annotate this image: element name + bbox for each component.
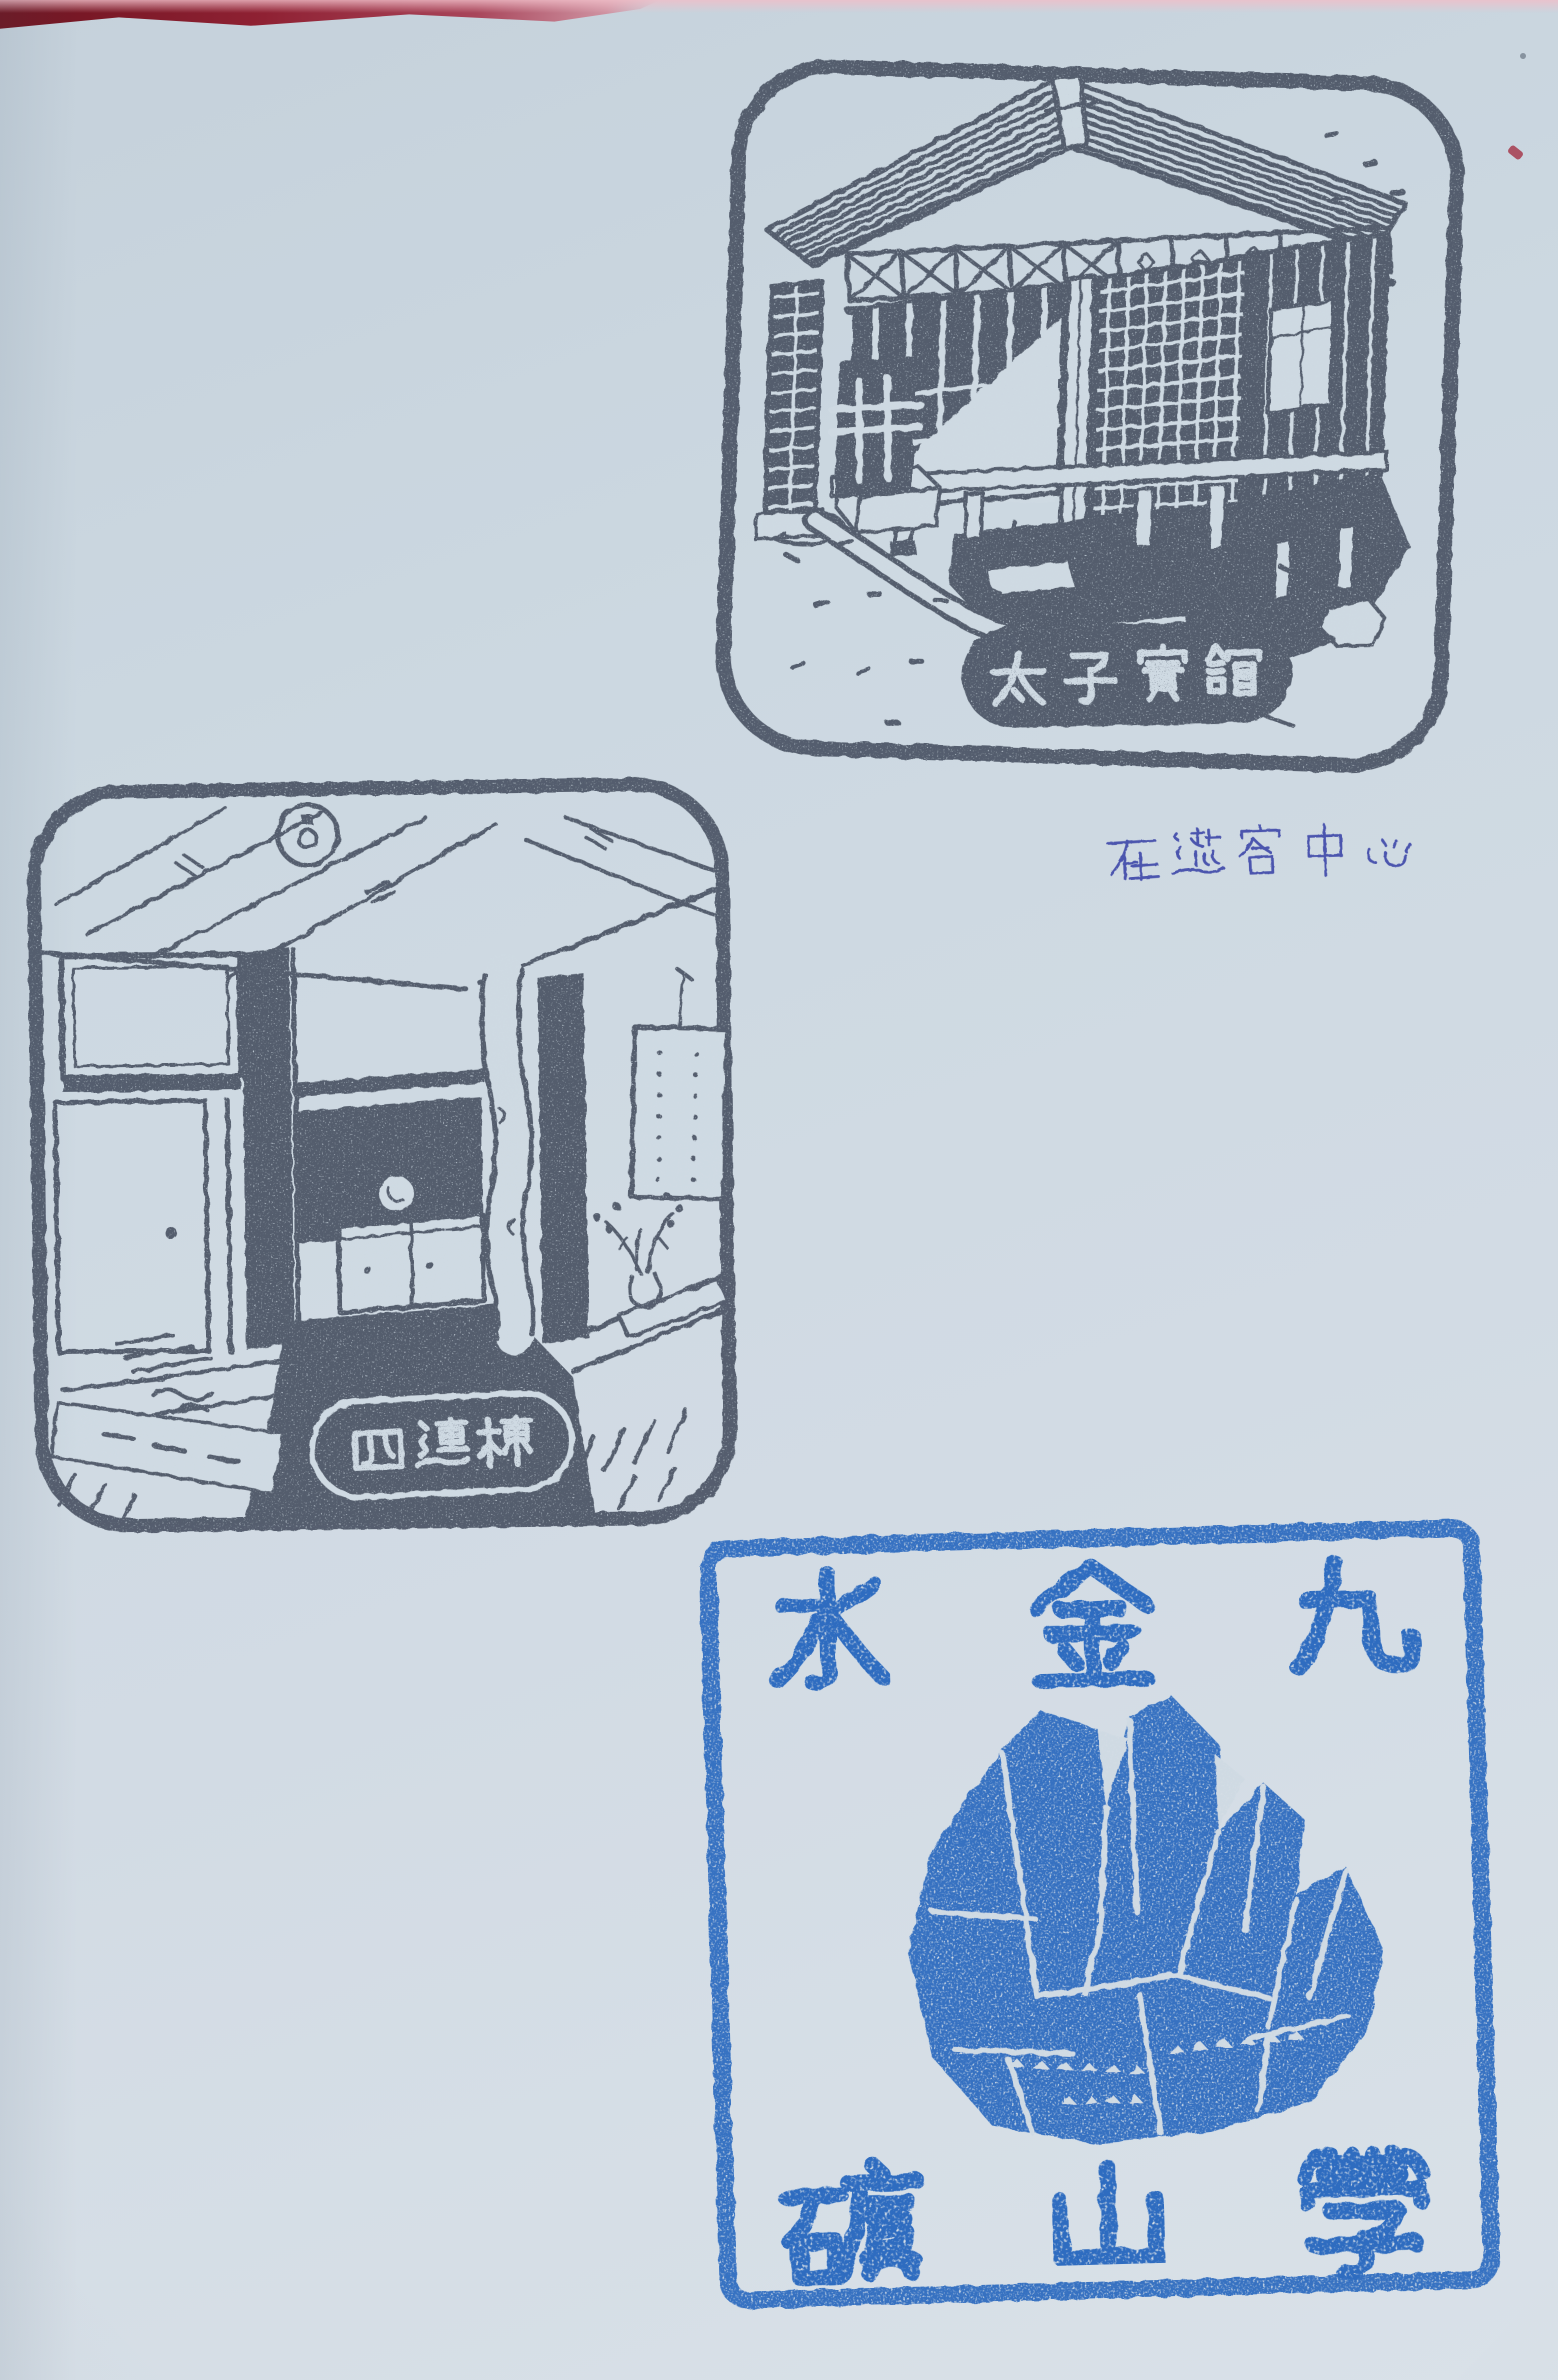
glyph-太 xyxy=(985,646,1052,713)
glyph-山 xyxy=(1031,2147,1185,2301)
glyph-連 xyxy=(411,1415,474,1478)
glyph-遊 xyxy=(1165,823,1229,887)
glyph-賓 xyxy=(1129,643,1196,710)
ikebana-vase xyxy=(629,1272,660,1307)
prince-chalet-label xyxy=(973,636,1281,718)
glyph-四 xyxy=(347,1418,410,1481)
glyph-館 xyxy=(1201,641,1268,708)
glyph-客 xyxy=(1229,821,1293,885)
sliding-door xyxy=(55,1100,208,1352)
glyph-在 xyxy=(1101,825,1165,889)
glyph-子 xyxy=(1057,644,1124,711)
four-joined-label xyxy=(325,1406,560,1487)
stamp-mine-school xyxy=(694,1514,1506,2326)
mine-school-bottom-row xyxy=(775,2128,1441,2308)
red-ink-speck xyxy=(1507,144,1524,160)
glyph-水 xyxy=(753,1559,903,1709)
glyph-棟 xyxy=(475,1412,538,1475)
stamp-four-joined-houses xyxy=(25,775,739,1535)
glyph-金 xyxy=(1017,1552,1167,1702)
ceiling-lamp xyxy=(277,805,338,866)
glyph-中 xyxy=(1293,819,1357,883)
hanging-scroll xyxy=(631,969,728,1199)
glyph-九 xyxy=(1281,1545,1431,1695)
handwritten-note xyxy=(1095,808,1428,897)
dust-speck xyxy=(1520,53,1526,59)
glyph-學 xyxy=(1287,2140,1441,2294)
round-vase xyxy=(376,1174,417,1215)
glyph-礦 xyxy=(776,2154,930,2308)
mine-school-top-row xyxy=(753,1542,1431,1713)
glyph-心 xyxy=(1357,816,1421,880)
transom-window xyxy=(61,954,241,1078)
stamp-book-page-photo: 太子賓館 四連棟 水金九 礦山學 在遊客中心 xyxy=(0,0,1558,2380)
stamp-prince-chalet xyxy=(711,55,1469,778)
crystal-cluster xyxy=(901,1689,1389,2148)
page-top-fringe xyxy=(0,0,1558,13)
